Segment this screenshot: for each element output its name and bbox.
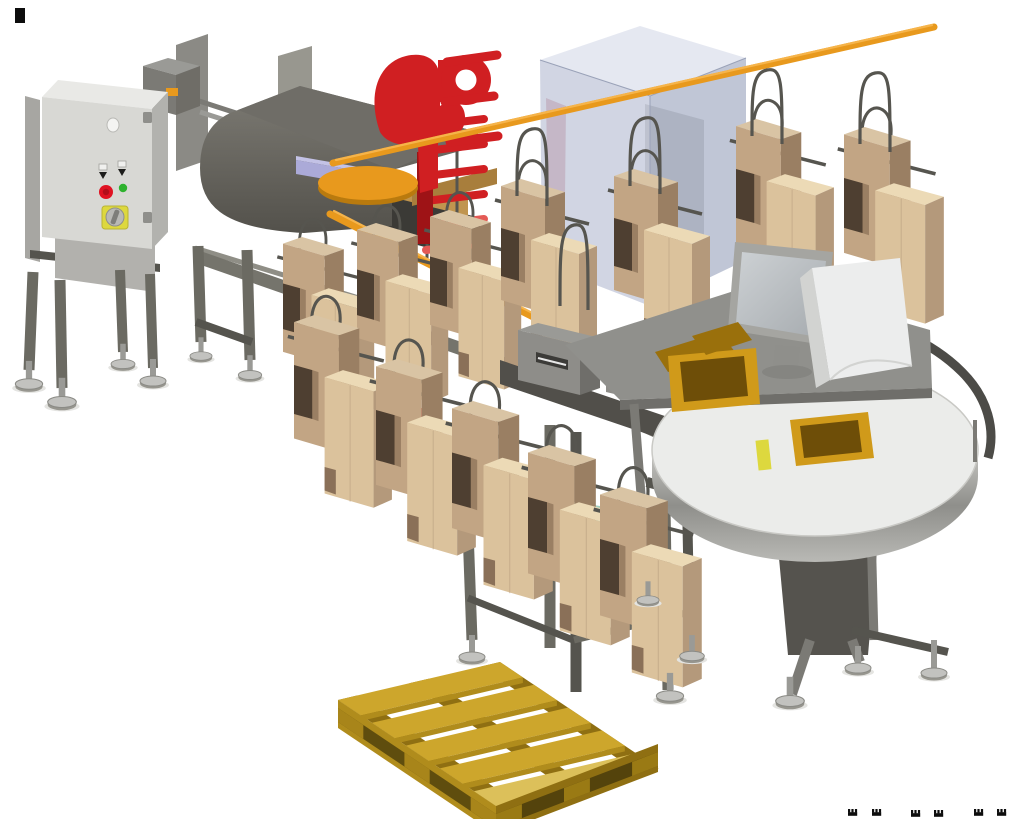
- door-hinge: [143, 112, 152, 123]
- rendered-scene: [0, 0, 1024, 819]
- stand-leg: [120, 270, 123, 352]
- cabinet-side: [152, 92, 168, 249]
- stand-leg: [150, 274, 153, 368]
- stand-leg: [29, 272, 33, 370]
- monitor-stand: [773, 345, 800, 368]
- cabinet-door: [42, 97, 152, 249]
- red-lobe-hole: [456, 70, 477, 91]
- rotary-disc: [318, 166, 418, 205]
- rear-panel-strip: [25, 96, 40, 262]
- cropped-glyph-mark: [872, 809, 881, 816]
- deflector-panel: [800, 258, 912, 388]
- door-knob: [107, 118, 119, 132]
- door-hinge: [143, 212, 152, 223]
- red-peg: [445, 96, 494, 102]
- packaging-line-illustration: [0, 0, 1024, 819]
- stand-leg: [60, 280, 62, 388]
- monitor-base: [762, 365, 812, 379]
- emergency-stop-center: [103, 189, 109, 195]
- tray: [790, 412, 874, 466]
- top-left-mark: [15, 8, 25, 23]
- cropped-glyph-mark: [911, 810, 920, 817]
- main-switch: [102, 206, 128, 229]
- cropped-glyph-mark: [934, 810, 943, 817]
- cropped-glyph-mark: [848, 809, 857, 816]
- green-button: [119, 184, 127, 192]
- cropped-glyph-mark: [997, 809, 1006, 816]
- cropped-glyph-mark: [974, 809, 983, 816]
